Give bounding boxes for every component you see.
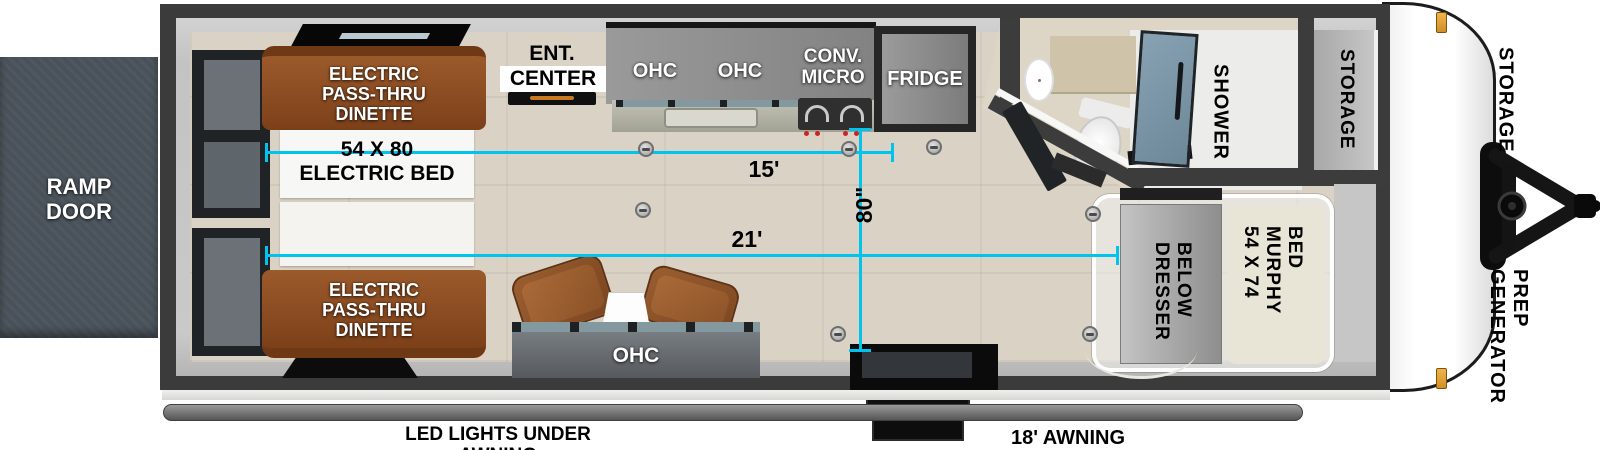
sofa-ohc: OHC (512, 332, 760, 378)
sofa-ohc-label: OHC (512, 344, 760, 368)
dresser-label: DRESSER BELOW (1148, 230, 1196, 352)
conv-micro-label: CONV. MICRO (791, 46, 875, 89)
body-bottom-trim (162, 390, 1390, 400)
shower-label: SHOWER (1204, 54, 1236, 170)
dim-label-21: 21' (725, 226, 769, 253)
shower-door-handle (1175, 62, 1184, 120)
murphy-bed-label: 54 X 74 MURPHY BED (1246, 226, 1298, 360)
dim-tick (265, 143, 268, 162)
recessed-light (1085, 206, 1101, 222)
closet-left-wall (1298, 18, 1314, 186)
dinette-top: ELECTRIC PASS-THRU DINETTE (262, 46, 486, 130)
stove-knob (815, 131, 820, 136)
recessed-light (1082, 326, 1098, 342)
ent-center-label-box: CENTER (500, 66, 606, 92)
front-storage-label: STORAGE (1490, 34, 1520, 166)
floor-mat (282, 358, 418, 378)
dim-line-21 (267, 254, 1118, 257)
fridge: FRIDGE (874, 26, 976, 132)
ramp-door: RAMP DOOR (0, 57, 158, 338)
recessed-light (830, 326, 846, 342)
dim-label-80: 80" (851, 175, 881, 235)
recessed-light (638, 141, 654, 157)
bedroom-platform (1334, 184, 1376, 362)
bath-sink (1024, 58, 1054, 102)
dim-tick (849, 128, 871, 131)
window-glass (204, 142, 260, 208)
led-lights-label: LED LIGHTS UNDER AWNING (368, 424, 628, 450)
bed-foot-rail (1120, 188, 1222, 200)
ent-center-label-bottom: CENTER (500, 67, 606, 91)
clearance-light-top (1436, 12, 1447, 33)
storage-closet-label: STORAGE (1330, 42, 1362, 156)
dinette-bottom-label: ELECTRIC PASS-THRU DINETTE (262, 280, 486, 340)
recessed-light (841, 141, 857, 157)
stove (798, 98, 872, 130)
electric-bed-label: 54 X 80 ELECTRIC BED (280, 138, 474, 185)
stove-knob (804, 131, 809, 136)
generator-prep-label: GENERATOR PREP (1478, 266, 1538, 406)
fireplace-glow (530, 96, 574, 100)
clearance-light-bottom (1436, 368, 1447, 389)
window-glass (204, 60, 260, 130)
dim-tick (1116, 246, 1119, 265)
ohc-right-label: OHC (707, 60, 773, 82)
ramp-door-label: RAMP DOOR (0, 175, 158, 224)
shower-door (1131, 30, 1198, 168)
ent-center-label-top: ENT. (498, 42, 606, 66)
window (192, 228, 270, 356)
recessed-light (926, 139, 942, 155)
awning-length-label: 18' AWNING (998, 427, 1138, 449)
bath-counter (1050, 36, 1136, 94)
window (192, 50, 270, 218)
kitchen-sink (664, 108, 758, 128)
window-glass (204, 238, 260, 346)
ohc-left-label: OHC (622, 60, 688, 82)
fireplace (508, 92, 596, 105)
dinette-bottom: ELECTRIC PASS-THRU DINETTE (262, 270, 486, 358)
sink-drain (1038, 79, 1041, 82)
fridge-label: FRIDGE (874, 68, 976, 90)
dim-tick (891, 143, 894, 162)
dinette-top-label: ELECTRIC PASS-THRU DINETTE (262, 64, 486, 124)
stove-knob (843, 131, 848, 136)
dim-tick (265, 246, 268, 265)
dim-line-80 (859, 129, 862, 352)
dim-label-15: 15' (742, 156, 786, 183)
rv-floorplan: RAMP DOOR ELECTRIC PASS-THRU DINETTE ELE… (0, 0, 1600, 450)
entry-platform (850, 344, 998, 392)
recessed-light (635, 202, 651, 218)
awning-bar (163, 404, 1303, 421)
kitchen-cabinets: OHC OHC CONV. MICRO (606, 22, 876, 104)
entry-platform-top (862, 352, 972, 378)
dim-tick (849, 349, 871, 352)
burner-icon (840, 105, 864, 122)
murphy-bed: DRESSER BELOW 54 X 74 MURPHY BED (1092, 194, 1334, 372)
burner-icon (805, 105, 829, 122)
skylight-glass (339, 33, 430, 39)
